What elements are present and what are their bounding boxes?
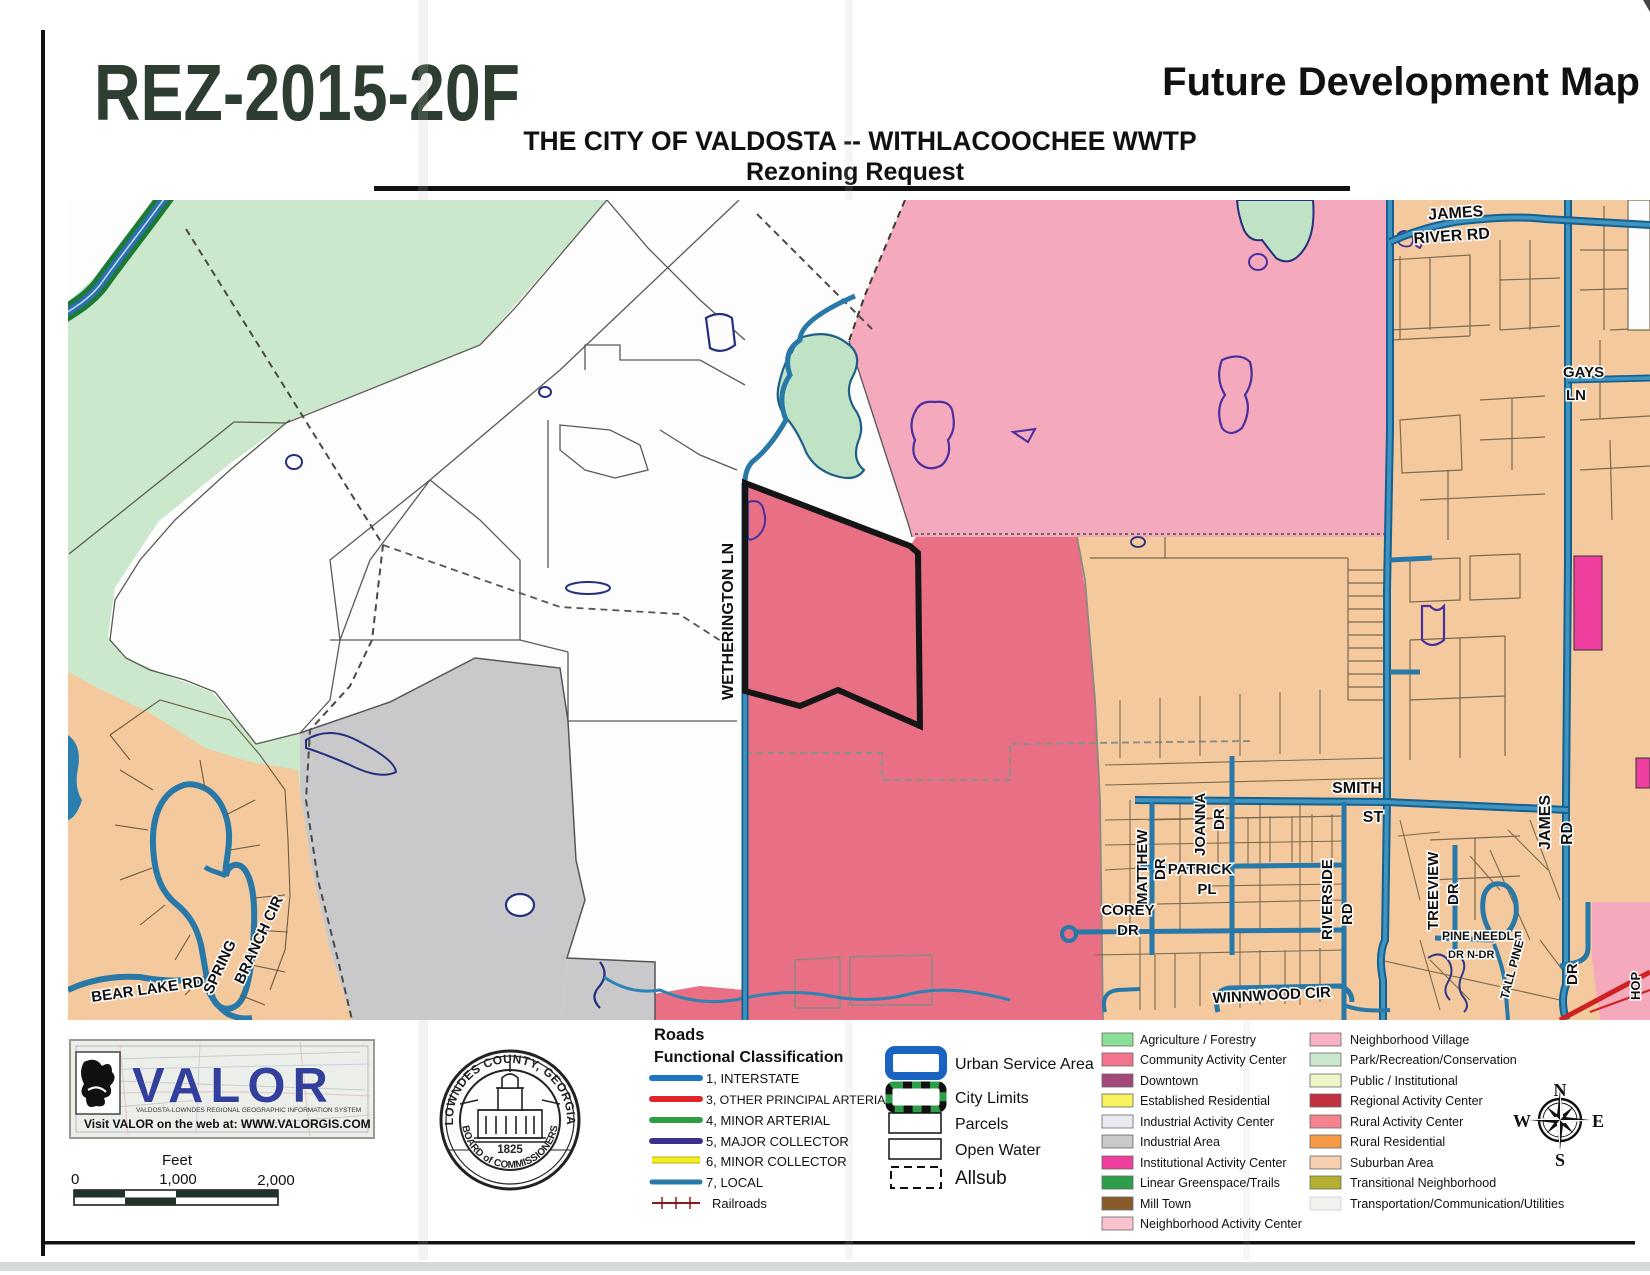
svg-text:5, MAJOR COLLECTOR: 5, MAJOR COLLECTOR <box>706 1134 849 1149</box>
svg-text:Future Development Map: Future Development Map <box>1162 60 1640 104</box>
svg-text:Community Activity Center: Community Activity Center <box>1140 1053 1287 1067</box>
svg-text:Industrial Area: Industrial Area <box>1140 1135 1220 1149</box>
svg-text:Transitional Neighborhood: Transitional Neighborhood <box>1350 1176 1496 1190</box>
svg-text:Neighborhood Activity Center: Neighborhood Activity Center <box>1140 1217 1302 1231</box>
svg-text:Visit VALOR on the web at: WWW: Visit VALOR on the web at: WWW.VALORGIS.… <box>84 1117 371 1131</box>
svg-text:SMITH: SMITH <box>1332 780 1382 797</box>
svg-text:W: W <box>1513 1111 1531 1131</box>
svg-text:Mill Town: Mill Town <box>1140 1197 1191 1211</box>
svg-text:3, OTHER PRINCIPAL ARTERIAL: 3, OTHER PRINCIPAL ARTERIAL <box>706 1093 892 1107</box>
svg-text:Railroads: Railroads <box>712 1196 767 1211</box>
svg-text:City Limits: City Limits <box>955 1090 1029 1107</box>
svg-text:Neighborhood Village: Neighborhood Village <box>1350 1033 1469 1047</box>
svg-text:DR: DR <box>1117 922 1139 939</box>
svg-text:4, MINOR ARTERIAL: 4, MINOR ARTERIAL <box>706 1113 830 1128</box>
svg-text:1, INTERSTATE: 1, INTERSTATE <box>706 1071 800 1086</box>
svg-text:DR: DR <box>1152 858 1169 880</box>
svg-text:6, MINOR COLLECTOR: 6, MINOR COLLECTOR <box>706 1154 847 1169</box>
svg-text:ST: ST <box>1363 809 1384 826</box>
svg-text:Allsub: Allsub <box>955 1168 1007 1189</box>
svg-text:WETHERINGTON LN: WETHERINGTON LN <box>720 543 737 700</box>
svg-text:Open Water: Open Water <box>955 1142 1041 1159</box>
svg-text:Agriculture / Forestry: Agriculture / Forestry <box>1140 1033 1257 1047</box>
svg-text:Parcels: Parcels <box>955 1116 1008 1133</box>
svg-text:PINE NEEDLE: PINE NEEDLE <box>1442 929 1522 943</box>
svg-text:Industrial Activity Center: Industrial Activity Center <box>1140 1115 1274 1129</box>
svg-text:VALOR: VALOR <box>132 1059 335 1113</box>
svg-text:7, LOCAL: 7, LOCAL <box>706 1175 763 1190</box>
svg-text:N: N <box>1554 1080 1567 1100</box>
svg-text:DR N-DR: DR N-DR <box>1448 949 1494 961</box>
svg-text:RD: RD <box>1339 903 1356 925</box>
svg-text:Rezoning Request: Rezoning Request <box>746 158 965 186</box>
svg-text:TREEVIEW: TREEVIEW <box>1425 851 1442 930</box>
svg-text:0: 0 <box>71 1171 79 1188</box>
svg-text:Urban Service Area: Urban Service Area <box>955 1056 1094 1073</box>
svg-text:1,000: 1,000 <box>159 1171 197 1188</box>
svg-text:DR: DR <box>1445 883 1462 905</box>
svg-text:THE CITY OF VALDOSTA -- WITHLA: THE CITY OF VALDOSTA -- WITHLACOOCHEE WW… <box>523 126 1196 156</box>
svg-text:MATTHEW: MATTHEW <box>1134 829 1151 905</box>
svg-text:Roads: Roads <box>654 1026 704 1044</box>
svg-text:Suburban Area: Suburban Area <box>1350 1156 1433 1170</box>
svg-text:Institutional Activity Center: Institutional Activity Center <box>1140 1156 1287 1170</box>
svg-text:1825: 1825 <box>497 1144 523 1156</box>
svg-text:Rural Activity Center: Rural Activity Center <box>1350 1115 1463 1129</box>
svg-text:Linear Greenspace/Trails: Linear Greenspace/Trails <box>1140 1176 1280 1190</box>
svg-text:Established Residential: Established Residential <box>1140 1094 1270 1108</box>
svg-text:RIVERSIDE: RIVERSIDE <box>1319 859 1336 940</box>
svg-text:Functional Classification: Functional Classification <box>654 1049 843 1066</box>
svg-text:VALDOSTA-LOWNDES REGIONAL GEOG: VALDOSTA-LOWNDES REGIONAL GEOGRAPHIC INF… <box>136 1107 361 1114</box>
svg-text:PL: PL <box>1197 881 1216 898</box>
svg-text:2,000: 2,000 <box>257 1172 295 1189</box>
svg-text:HOP: HOP <box>1628 972 1643 1001</box>
svg-text:LN: LN <box>1566 387 1586 404</box>
svg-text:COREY: COREY <box>1101 902 1154 919</box>
svg-text:PATRICK: PATRICK <box>1168 861 1233 878</box>
svg-text:RD: RD <box>1559 822 1576 845</box>
svg-text:REZ-2015-20F: REZ-2015-20F <box>94 48 520 137</box>
svg-text:Rural Residential: Rural Residential <box>1350 1135 1445 1149</box>
svg-text:S: S <box>1555 1150 1565 1170</box>
svg-text:DR: DR <box>1564 963 1581 985</box>
svg-text:Transportation/Communication/U: Transportation/Communication/Utilities <box>1350 1197 1564 1211</box>
svg-text:Park/Recreation/Conservation: Park/Recreation/Conservation <box>1350 1053 1517 1067</box>
svg-text:Downtown: Downtown <box>1140 1074 1198 1088</box>
svg-text:GAYS: GAYS <box>1563 364 1604 381</box>
svg-text:DR: DR <box>1211 808 1228 830</box>
svg-text:JOANNA: JOANNA <box>1192 792 1209 856</box>
svg-text:E: E <box>1592 1111 1604 1131</box>
svg-text:Regional Activity Center: Regional Activity Center <box>1350 1094 1483 1108</box>
svg-text:JAMES: JAMES <box>1537 795 1554 850</box>
svg-text:Feet: Feet <box>162 1152 193 1169</box>
svg-text:Public / Institutional: Public / Institutional <box>1350 1074 1458 1088</box>
